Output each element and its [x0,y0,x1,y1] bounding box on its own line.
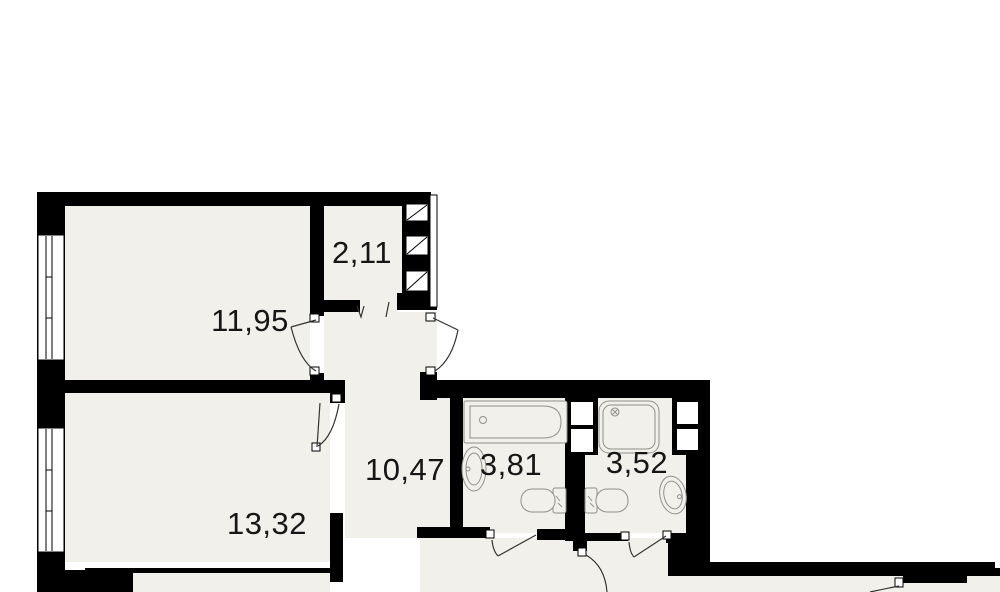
area-label-room-bottom-left: 13,32 [202,506,332,542]
wall-bath2-bottom [565,533,628,541]
toilet-left [521,488,566,513]
window-frame [38,428,64,552]
wall-bottom-band [686,562,1000,576]
jamb [895,578,903,587]
toilet-right [585,488,628,513]
wall-bottom-left-block [60,570,133,592]
jamb [312,443,320,451]
shaft-box [571,402,593,425]
window-bottom-left [38,428,64,552]
glazing-outer-line [430,195,437,307]
floor-hall-gap [345,380,420,400]
window-top-left [38,235,64,360]
jamb [426,367,435,375]
area-label-bathroom-left: 3,81 [446,447,576,483]
wall-bath-top [420,380,710,398]
jamb [332,394,341,402]
jamb [426,313,435,321]
jamb [621,532,629,540]
window-frame [38,235,64,360]
floor-hall-upper [324,312,437,380]
wall-room3-bottom-line [85,568,330,573]
shaft-box [677,402,698,424]
wall-mid-divider [65,380,345,393]
wall-top-small-bottom [310,300,360,312]
floor-doorway-top-small [360,300,397,314]
floor-bottom-room [420,538,686,592]
wall-hall-bottom-stub [417,527,490,538]
floor-room-top-left [65,206,310,380]
door-swing-arc [435,330,458,371]
area-label-room-top-left: 11,95 [185,303,315,339]
area-label-room-top-small: 2,11 [297,235,427,271]
floor-plan: 11,95 2,11 13,32 10,47 3,81 3,52 [0,0,1000,592]
toilet-bowl [521,489,555,512]
wall-top [37,192,430,206]
jamb [578,548,586,556]
area-label-bathroom-right: 3,52 [572,445,702,481]
band-notch [995,562,1000,568]
floor-bottom-left-strip [133,573,330,592]
wall-bottom-band-thick [903,576,967,583]
floor-plan-drawing [0,0,1000,592]
toilet-bowl [596,489,628,512]
bathtub [464,401,567,443]
jamb [486,530,494,538]
